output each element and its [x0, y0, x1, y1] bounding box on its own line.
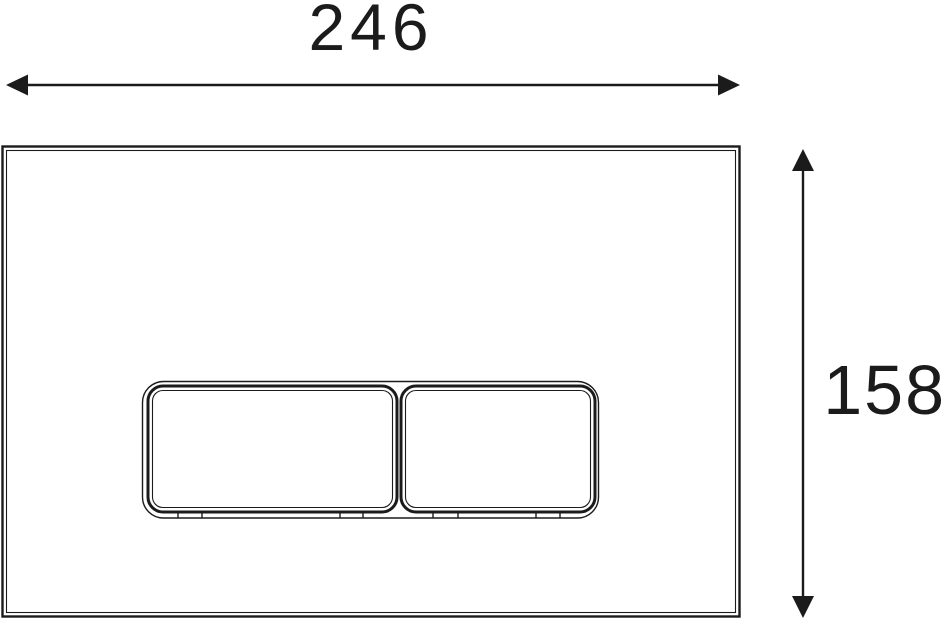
technical-drawing-canvas: 246 158	[0, 0, 946, 624]
height-dimension: 158	[792, 149, 946, 618]
arrowhead-left-icon	[6, 75, 28, 96]
width-dimension-label: 246	[308, 0, 433, 64]
width-dimension: 246	[6, 0, 740, 96]
arrowhead-up-icon	[792, 149, 814, 171]
arrowhead-right-icon	[718, 75, 740, 96]
flush-plate-drawing: 246 158	[0, 0, 946, 624]
arrowhead-down-icon	[792, 596, 814, 618]
height-dimension-label: 158	[823, 351, 946, 429]
